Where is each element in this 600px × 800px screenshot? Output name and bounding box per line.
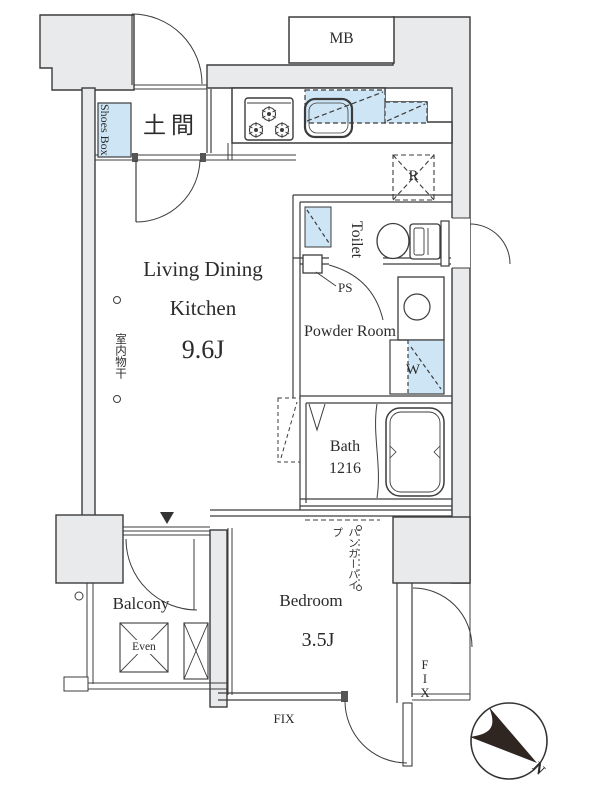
doma-step-door-icon xyxy=(136,160,200,222)
hatch-label: Even xyxy=(127,640,161,654)
bedroom-bottom-door-icon xyxy=(345,701,412,766)
wall-balcony-left-block xyxy=(56,515,123,583)
fix-window-bottom-label: FIX xyxy=(259,711,309,727)
wall-left xyxy=(82,88,95,520)
kitchen-overhead-cabinets xyxy=(305,90,427,123)
bath-folding-door-icon xyxy=(309,404,325,430)
floor-plan: MB 土間 Shoes Box Living Dining Kitchen 9.… xyxy=(0,0,600,800)
pipe-space-label: PS xyxy=(338,280,368,296)
bedroom-size-label: 3.5J xyxy=(253,628,383,652)
bedroom-side-door-icon xyxy=(413,588,472,647)
toilet-shelf xyxy=(305,207,331,247)
bath-size-label: 1216 xyxy=(316,459,374,479)
wall-block-mid-right xyxy=(393,517,470,583)
floor-plan-drawing xyxy=(0,0,600,800)
bath-partition xyxy=(376,404,379,498)
ldk-size-label: 9.6J xyxy=(108,334,298,366)
hanger-pipe-label: ハンガーパイプ xyxy=(326,527,360,599)
bath-door-clearance xyxy=(278,398,300,462)
bathtub-icon xyxy=(386,408,444,496)
toilet-label: Toilet xyxy=(341,204,366,276)
entrance-label: 土間 xyxy=(132,112,210,140)
wall-top-left-block xyxy=(40,15,134,90)
shoes-box-label: Shoes Box xyxy=(97,104,131,156)
stove-icon xyxy=(245,98,293,140)
ldk-label-line2: Kitchen xyxy=(108,296,298,322)
refrigerator-label: R xyxy=(393,167,434,185)
washbasin-icon xyxy=(398,277,444,340)
balcony-window-icon xyxy=(123,512,210,535)
meter-box-label: MB xyxy=(289,30,394,49)
toilet-fixture-icon xyxy=(377,224,440,260)
wall-balcony-divider xyxy=(210,530,227,707)
indoor-laundry-label: 室内物干 xyxy=(107,320,127,392)
balcony-label: Balcony xyxy=(97,594,185,615)
washer-label: W xyxy=(398,361,428,379)
entrance-door-icon xyxy=(132,14,207,89)
bath-label: Bath xyxy=(316,437,374,457)
powder-room-label: Powder Room xyxy=(303,322,397,343)
toilet-door-icon xyxy=(441,218,510,268)
ldk-label-line1: Living Dining xyxy=(108,257,298,283)
fix-window-right-label: FIX xyxy=(412,653,432,705)
pipe-space xyxy=(303,255,336,286)
